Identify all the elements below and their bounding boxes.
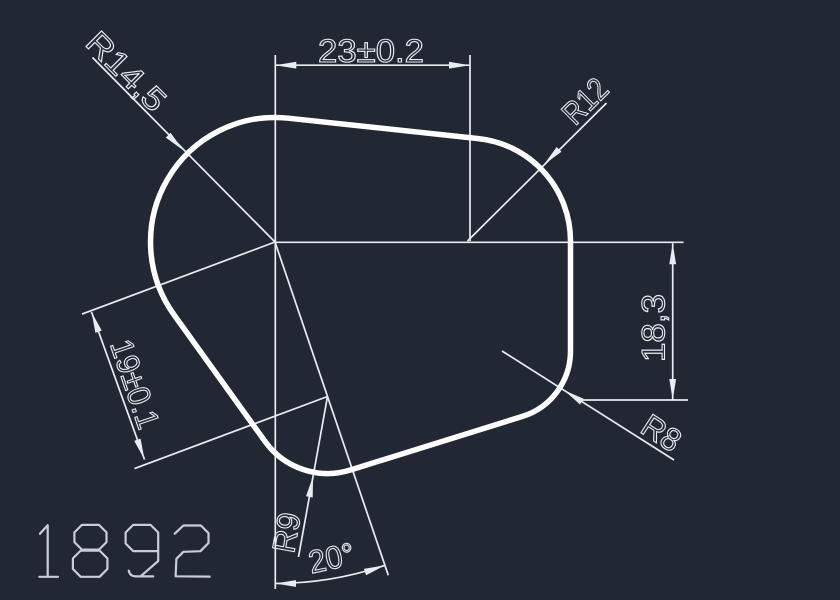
svg-text:23±0.2: 23±0.2: [318, 33, 424, 69]
svg-text:18,3: 18,3: [636, 294, 672, 362]
svg-text:R9: R9: [265, 510, 307, 556]
